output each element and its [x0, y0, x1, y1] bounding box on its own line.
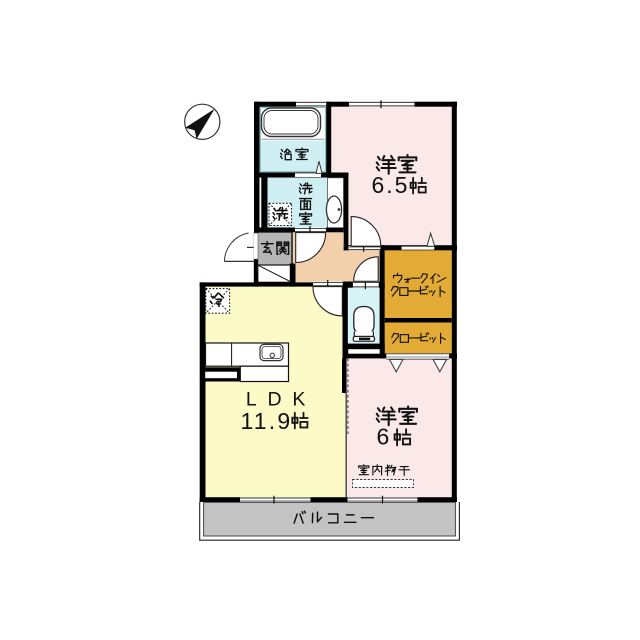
svg-text:6: 6 — [377, 424, 390, 450]
svg-text:6.5: 6.5 — [372, 172, 410, 198]
svg-text:11.9: 11.9 — [241, 408, 293, 434]
